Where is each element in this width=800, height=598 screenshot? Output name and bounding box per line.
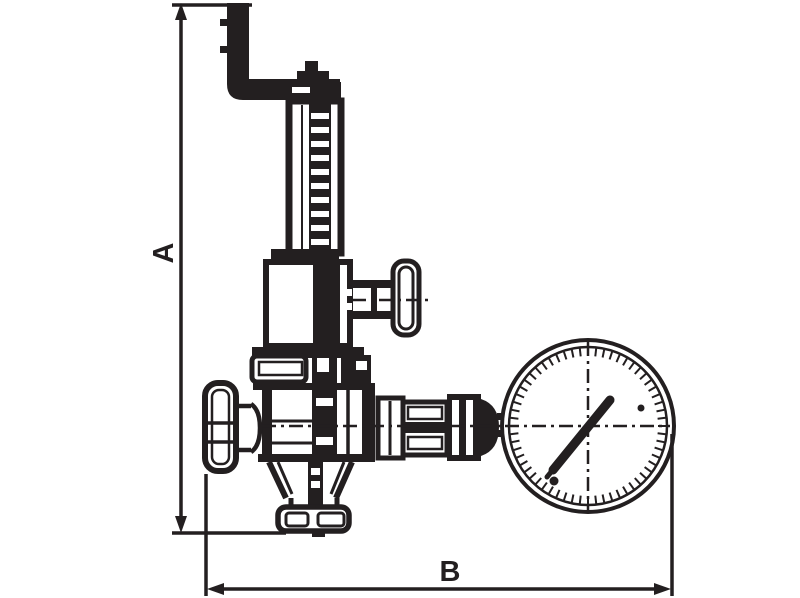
valve-technical-drawing: A B [0, 0, 800, 598]
flange-tab [312, 531, 325, 537]
right-nut-mark [356, 361, 367, 370]
body-stem-gap-2 [316, 437, 333, 445]
pipe-tick-upper [220, 19, 228, 26]
union-nut-rib-1 [452, 400, 459, 455]
funnel-left-outer [269, 462, 286, 498]
union-nut-rib-2 [466, 400, 473, 455]
dimension-a-label: A [148, 242, 180, 263]
valve-drawing-svg: A B [0, 0, 800, 598]
outlet-union [378, 394, 509, 461]
dimension-b-label: B [440, 556, 461, 588]
valve-body [253, 383, 375, 462]
relief-t-handle [350, 261, 419, 335]
center-packing-slot [317, 358, 329, 372]
funnel-stem-slot-2 [311, 481, 320, 488]
hub-bulge [251, 404, 260, 452]
dim-b-arrow-right [654, 583, 671, 595]
bonnet-notch-upper [343, 289, 352, 296]
dim-b-arrow-left [207, 583, 224, 595]
bottom-outlet [269, 462, 352, 537]
spring-housing [289, 101, 341, 253]
dim-a-arrow-down [175, 516, 187, 533]
handwheel-rim [205, 383, 236, 471]
gauge-dot-tail [550, 477, 559, 486]
body-left-wall [262, 388, 272, 456]
adjusting-cap-fitting [287, 61, 341, 103]
bonnet-notch-lower [343, 303, 352, 310]
union-cone [481, 399, 499, 456]
union-block-b-band [405, 422, 445, 433]
bonnet [252, 249, 364, 358]
gauge-dot-right [638, 405, 645, 412]
cap-highlight [292, 87, 310, 93]
funnel-right-outer [336, 462, 352, 498]
body-right-bar [362, 390, 375, 456]
body-stem-gap-1 [316, 398, 333, 406]
funnel-stem-slot-1 [311, 468, 320, 475]
handwheel [205, 383, 260, 471]
handle-grip-outer [393, 261, 419, 335]
pipe-tick-lower [220, 46, 228, 53]
bonnet-spring-column [313, 261, 340, 347]
